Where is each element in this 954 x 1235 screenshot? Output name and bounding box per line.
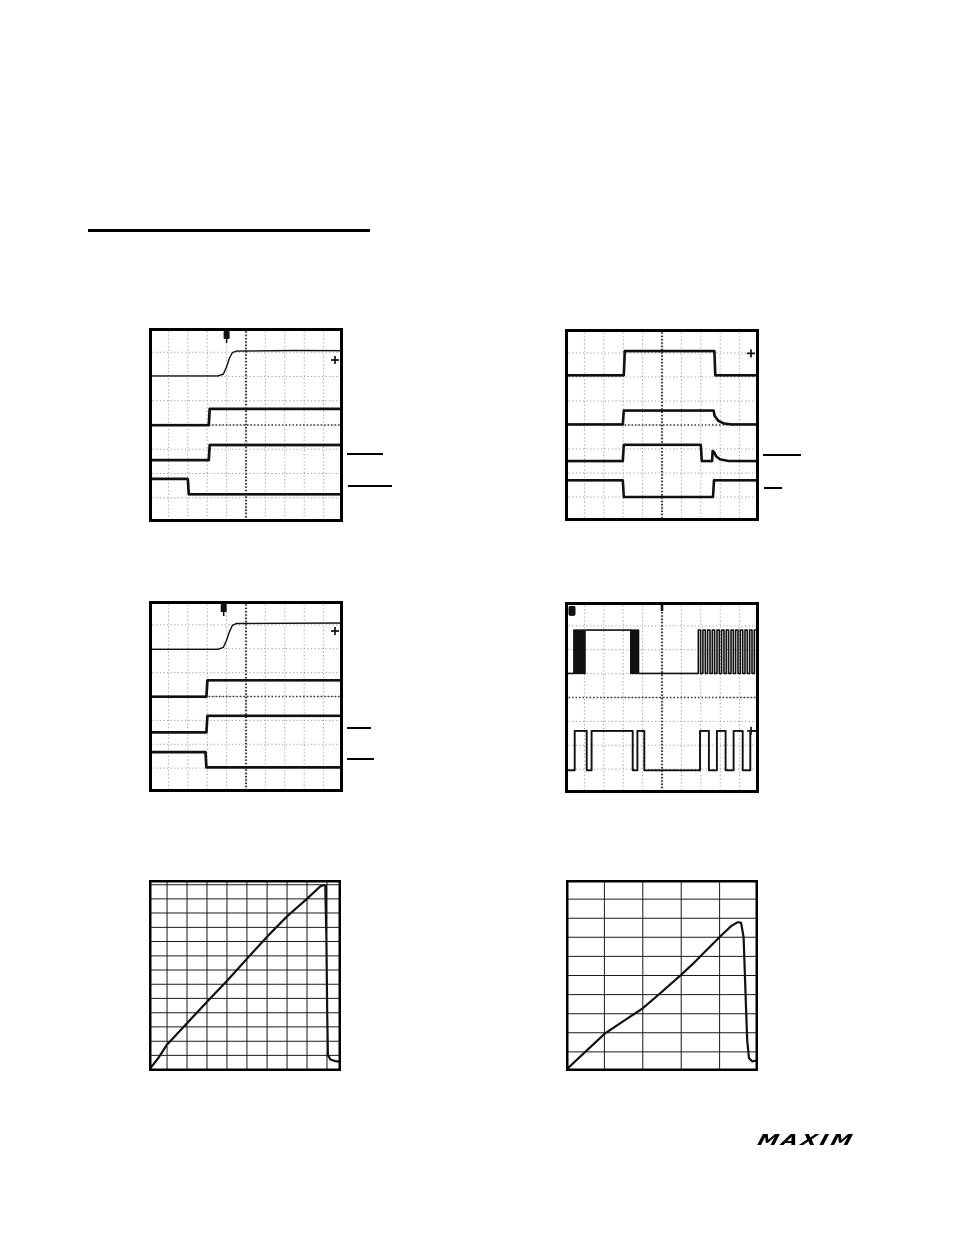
scope-mid-right	[565, 602, 759, 793]
level-marker-line	[348, 485, 392, 487]
graph-bottom-left-grid	[149, 880, 341, 1071]
graph-bottom-right	[566, 880, 758, 1071]
level-marker-line	[347, 453, 383, 455]
maxim-logo: MAXIM	[756, 1132, 857, 1148]
trace-position-marker-icon	[331, 627, 339, 635]
trigger-marker-icon	[224, 331, 230, 339]
level-marker-line	[347, 758, 374, 760]
scope-top-right	[565, 329, 759, 521]
level-marker-line	[347, 727, 371, 729]
scope-top-left-markers	[224, 331, 339, 364]
trace-position-marker-icon	[331, 356, 339, 364]
section-heading-underline	[88, 229, 370, 232]
level-marker-line	[763, 454, 801, 456]
trace-position-marker-icon	[747, 349, 755, 357]
maxim-logo-text: MAXIM	[756, 1131, 857, 1148]
datasheet-page: MAXIM	[0, 0, 954, 1235]
trigger-marker-icon	[221, 604, 227, 612]
scope-mid-left-markers	[221, 604, 339, 635]
level-marker-line	[764, 487, 782, 489]
scope-mid-left	[149, 601, 343, 792]
scope-top-left	[149, 328, 343, 522]
channel-marker-icon	[568, 606, 575, 616]
scope-top-right-markers	[747, 349, 755, 357]
graph-bottom-right-ramp-rounded-peak-curve	[566, 922, 758, 1070]
trace-position-marker-icon	[747, 727, 755, 735]
graph-bottom-left	[149, 880, 341, 1071]
graph-bottom-right-traces	[566, 922, 758, 1070]
